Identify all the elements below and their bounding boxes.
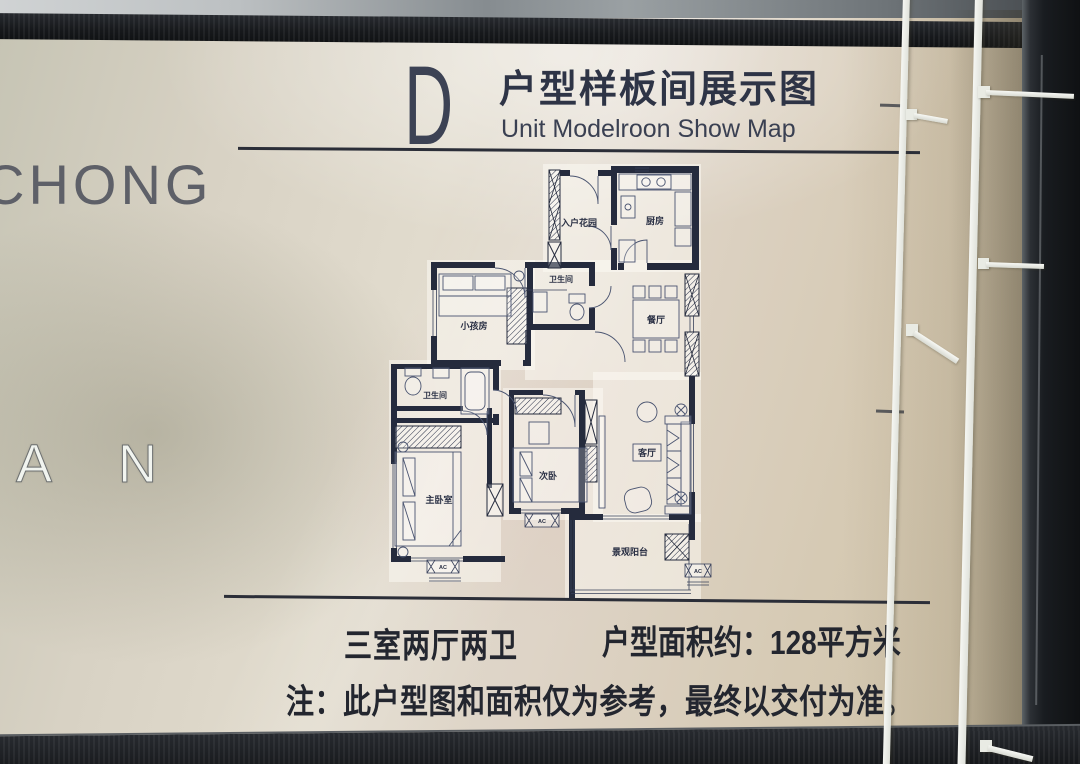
- brand-letter-a: A: [16, 433, 52, 495]
- room-label-master-bedroom: 主卧室: [425, 494, 452, 505]
- spec-room-count: 三室两厅两卫: [344, 620, 518, 668]
- room-label-living-room: 客厅: [637, 447, 656, 458]
- room-label-kids-room: 小孩房: [459, 320, 487, 331]
- floorplan-drawing: 入户花园 厨房 卫生间 餐厅 小孩房 卫生间 主卧室 次卧 客厅 景观阳台 AC…: [383, 162, 713, 602]
- room-label-kitchen: 厨房: [646, 215, 664, 226]
- frame-right-column: [1022, 0, 1080, 764]
- brand-text-partial: CHONG: [0, 152, 212, 217]
- ac-label-second: AC: [538, 519, 546, 525]
- spec-unit-area: 户型面积约：128平方米: [602, 617, 901, 665]
- frame-glass-bevel: [1035, 55, 1043, 705]
- room-label-balcony: 景观阳台: [612, 546, 648, 557]
- brand-letter-n: N: [118, 433, 157, 495]
- unit-letter: D: [404, 50, 453, 162]
- room-label-bathroom-upper: 卫生间: [549, 274, 573, 284]
- disclaimer-note: 注：此户型图和面积仅为参考，最终以交付为准。: [286, 676, 913, 724]
- ac-label-master: AC: [439, 565, 447, 571]
- board-title-cn: 户型样板间展示图: [499, 70, 819, 112]
- ac-label-balcony: AC: [694, 569, 702, 575]
- room-label-dining: 餐厅: [646, 314, 665, 325]
- room-label-bathroom-lower: 卫生间: [423, 390, 447, 400]
- board-title-en: Unit Modelroon Show Map: [501, 115, 796, 144]
- photo-of-floorplan-signboard: CHONG A N D 户型样板间展示图 Unit Modelroon Show…: [0, 0, 1080, 764]
- room-label-entry-garden: 入户花园: [560, 217, 597, 228]
- room-label-second-bedroom: 次卧: [539, 470, 557, 481]
